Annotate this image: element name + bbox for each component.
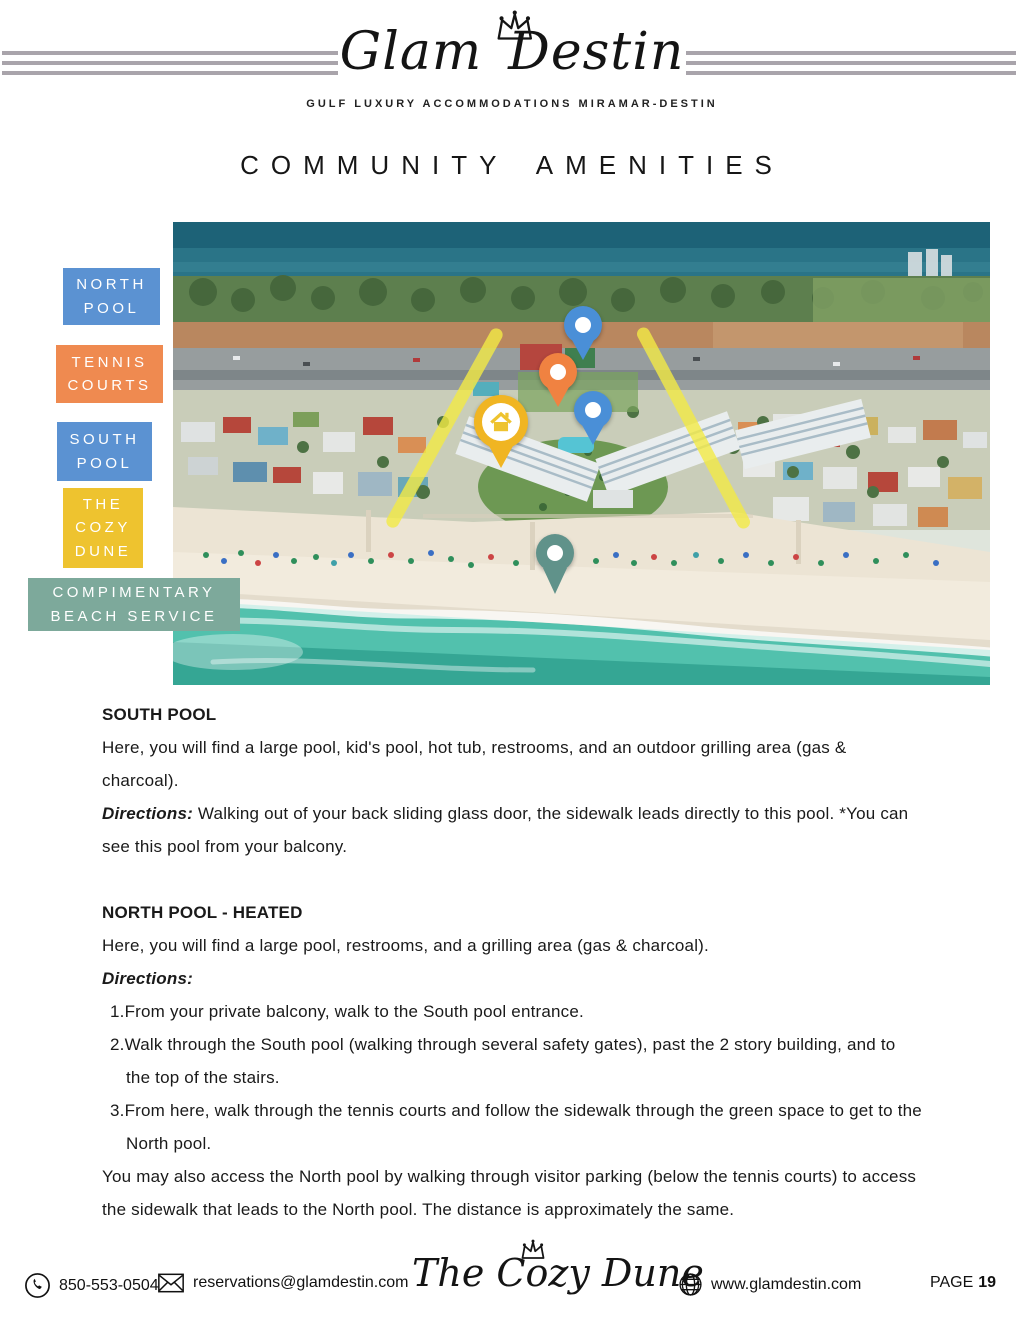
north-pool-pin	[564, 306, 602, 360]
amenities-text: SOUTH POOL Here, you will find a large p…	[102, 698, 924, 1226]
step-1: 1.From your private balcony, walk to the…	[110, 995, 924, 1028]
pin-head	[539, 353, 577, 391]
crown-icon	[518, 1238, 548, 1263]
guide-page: { "header": { "brand_word1": "Glam", "br…	[0, 0, 1024, 1325]
north-pool-heading: NORTH POOL - HEATED	[102, 896, 924, 929]
pin-head	[474, 395, 528, 449]
pin-head	[574, 391, 612, 429]
phone-icon	[24, 1272, 51, 1299]
north-pool-alternate-route: You may also access the North pool by wa…	[102, 1160, 924, 1226]
phone-number: 850-553-0504	[59, 1277, 159, 1295]
south-pool-directions: Directions: Walking out of your back sli…	[102, 797, 924, 863]
step-3: 3.From here, walk through the tennis cou…	[110, 1094, 924, 1160]
footer-logo: The Cozy Dune	[412, 1242, 642, 1304]
legend-tennis-courts: TENNIS COURTS	[56, 345, 163, 403]
decorative-lines-right	[686, 51, 1016, 75]
legend-the-cozy-dune: THE COZY DUNE	[63, 488, 143, 568]
step-2: 2.Walk through the South pool (walking t…	[110, 1028, 924, 1094]
directions-steps: 1.From your private balcony, walk to the…	[102, 995, 924, 1160]
north-pool-description: Here, you will find a large pool, restro…	[102, 929, 924, 962]
tennis-courts-pin	[539, 353, 577, 407]
legend-beach-service: COMPIMENTARY BEACH SERVICE	[28, 578, 240, 631]
beach-umbrellas	[173, 222, 179, 228]
brand-logo: GlamDestin	[302, 12, 722, 92]
south-pool-description: Here, you will find a large pool, kid's …	[102, 731, 924, 797]
directions-label: Directions:	[102, 804, 193, 823]
pin-head	[564, 306, 602, 344]
legend-south-pool: SOUTH POOL	[57, 422, 152, 481]
email-address: reservations@glamdestin.com	[193, 1274, 408, 1292]
page-title: COMMUNITY AMENITIES	[0, 150, 1024, 181]
globe-icon	[678, 1272, 703, 1297]
directions-label: Directions:	[102, 969, 193, 988]
beach-service-pin	[536, 534, 574, 594]
south-pool-heading: SOUTH POOL	[102, 698, 924, 731]
page-footer: 850-553-0504 reservations@glamdestin.com…	[0, 1240, 1024, 1320]
pin-head	[536, 534, 574, 572]
aerial-terrain	[173, 222, 990, 685]
house-icon	[488, 409, 514, 435]
decorative-lines-left	[2, 51, 338, 75]
legend-north-pool: NORTH POOL	[63, 268, 160, 325]
envelope-icon	[157, 1272, 185, 1294]
brand-tagline: GULF LUXURY ACCOMMODATIONS MIRAMAR-DESTI…	[0, 98, 1024, 110]
crown-icon	[492, 8, 538, 46]
page-number: PAGE19	[930, 1274, 996, 1292]
cozy-dune-house-pin	[474, 395, 528, 468]
aerial-map-photo	[173, 222, 990, 685]
north-pool-directions-label: Directions:	[102, 962, 924, 995]
footer-website: www.glamdestin.com	[678, 1272, 861, 1297]
footer-phone: 850-553-0504	[24, 1272, 159, 1299]
footer-email: reservations@glamdestin.com	[157, 1272, 408, 1294]
south-pool-pin	[574, 391, 612, 445]
website-url: www.glamdestin.com	[711, 1276, 861, 1294]
